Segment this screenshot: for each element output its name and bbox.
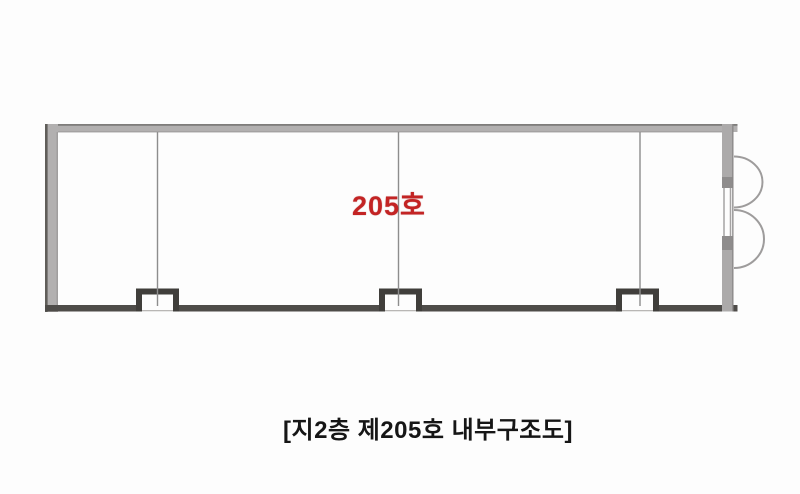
- plan-caption: [지2층 제205호 내부구조도]: [0, 410, 800, 445]
- door-arc: [734, 210, 764, 268]
- room-number-label: 205호: [352, 184, 472, 223]
- door-swing-arcs: [734, 157, 764, 269]
- floor-plan-page: 205호 [지2층 제205호 내부구조도]: [0, 0, 800, 494]
- door-arc: [734, 157, 762, 208]
- wall-right: [722, 124, 734, 312]
- column-notch: [379, 289, 422, 312]
- column-notch: [616, 289, 659, 312]
